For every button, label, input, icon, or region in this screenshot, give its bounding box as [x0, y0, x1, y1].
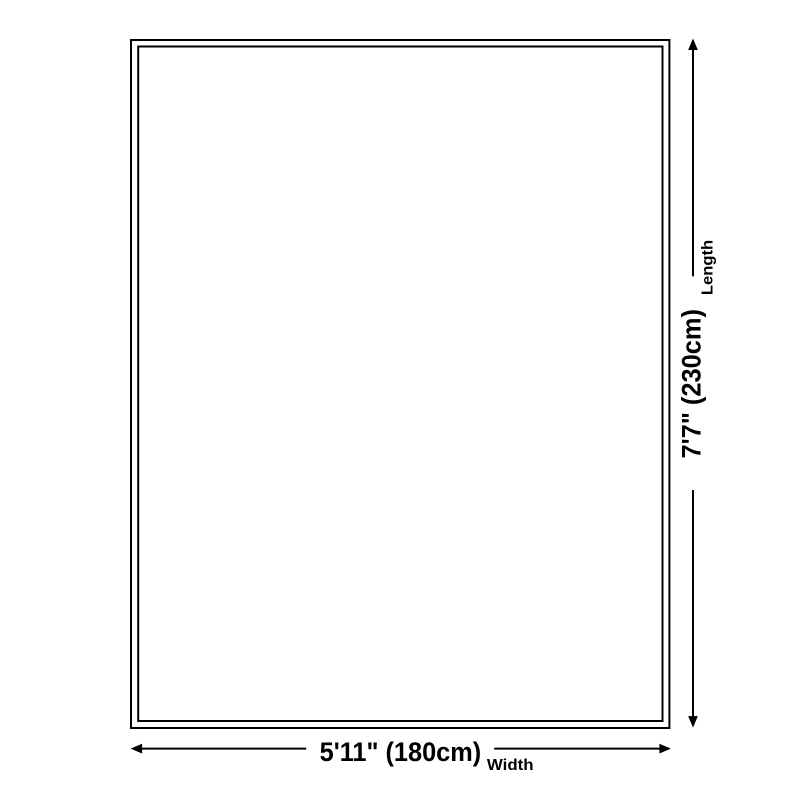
svg-text:Width: Width	[487, 757, 534, 774]
svg-text:Length: Length	[700, 240, 717, 295]
svg-text:5'11" (180cm): 5'11" (180cm)	[320, 737, 482, 767]
svg-text:7'7" (230cm): 7'7" (230cm)	[676, 309, 706, 459]
